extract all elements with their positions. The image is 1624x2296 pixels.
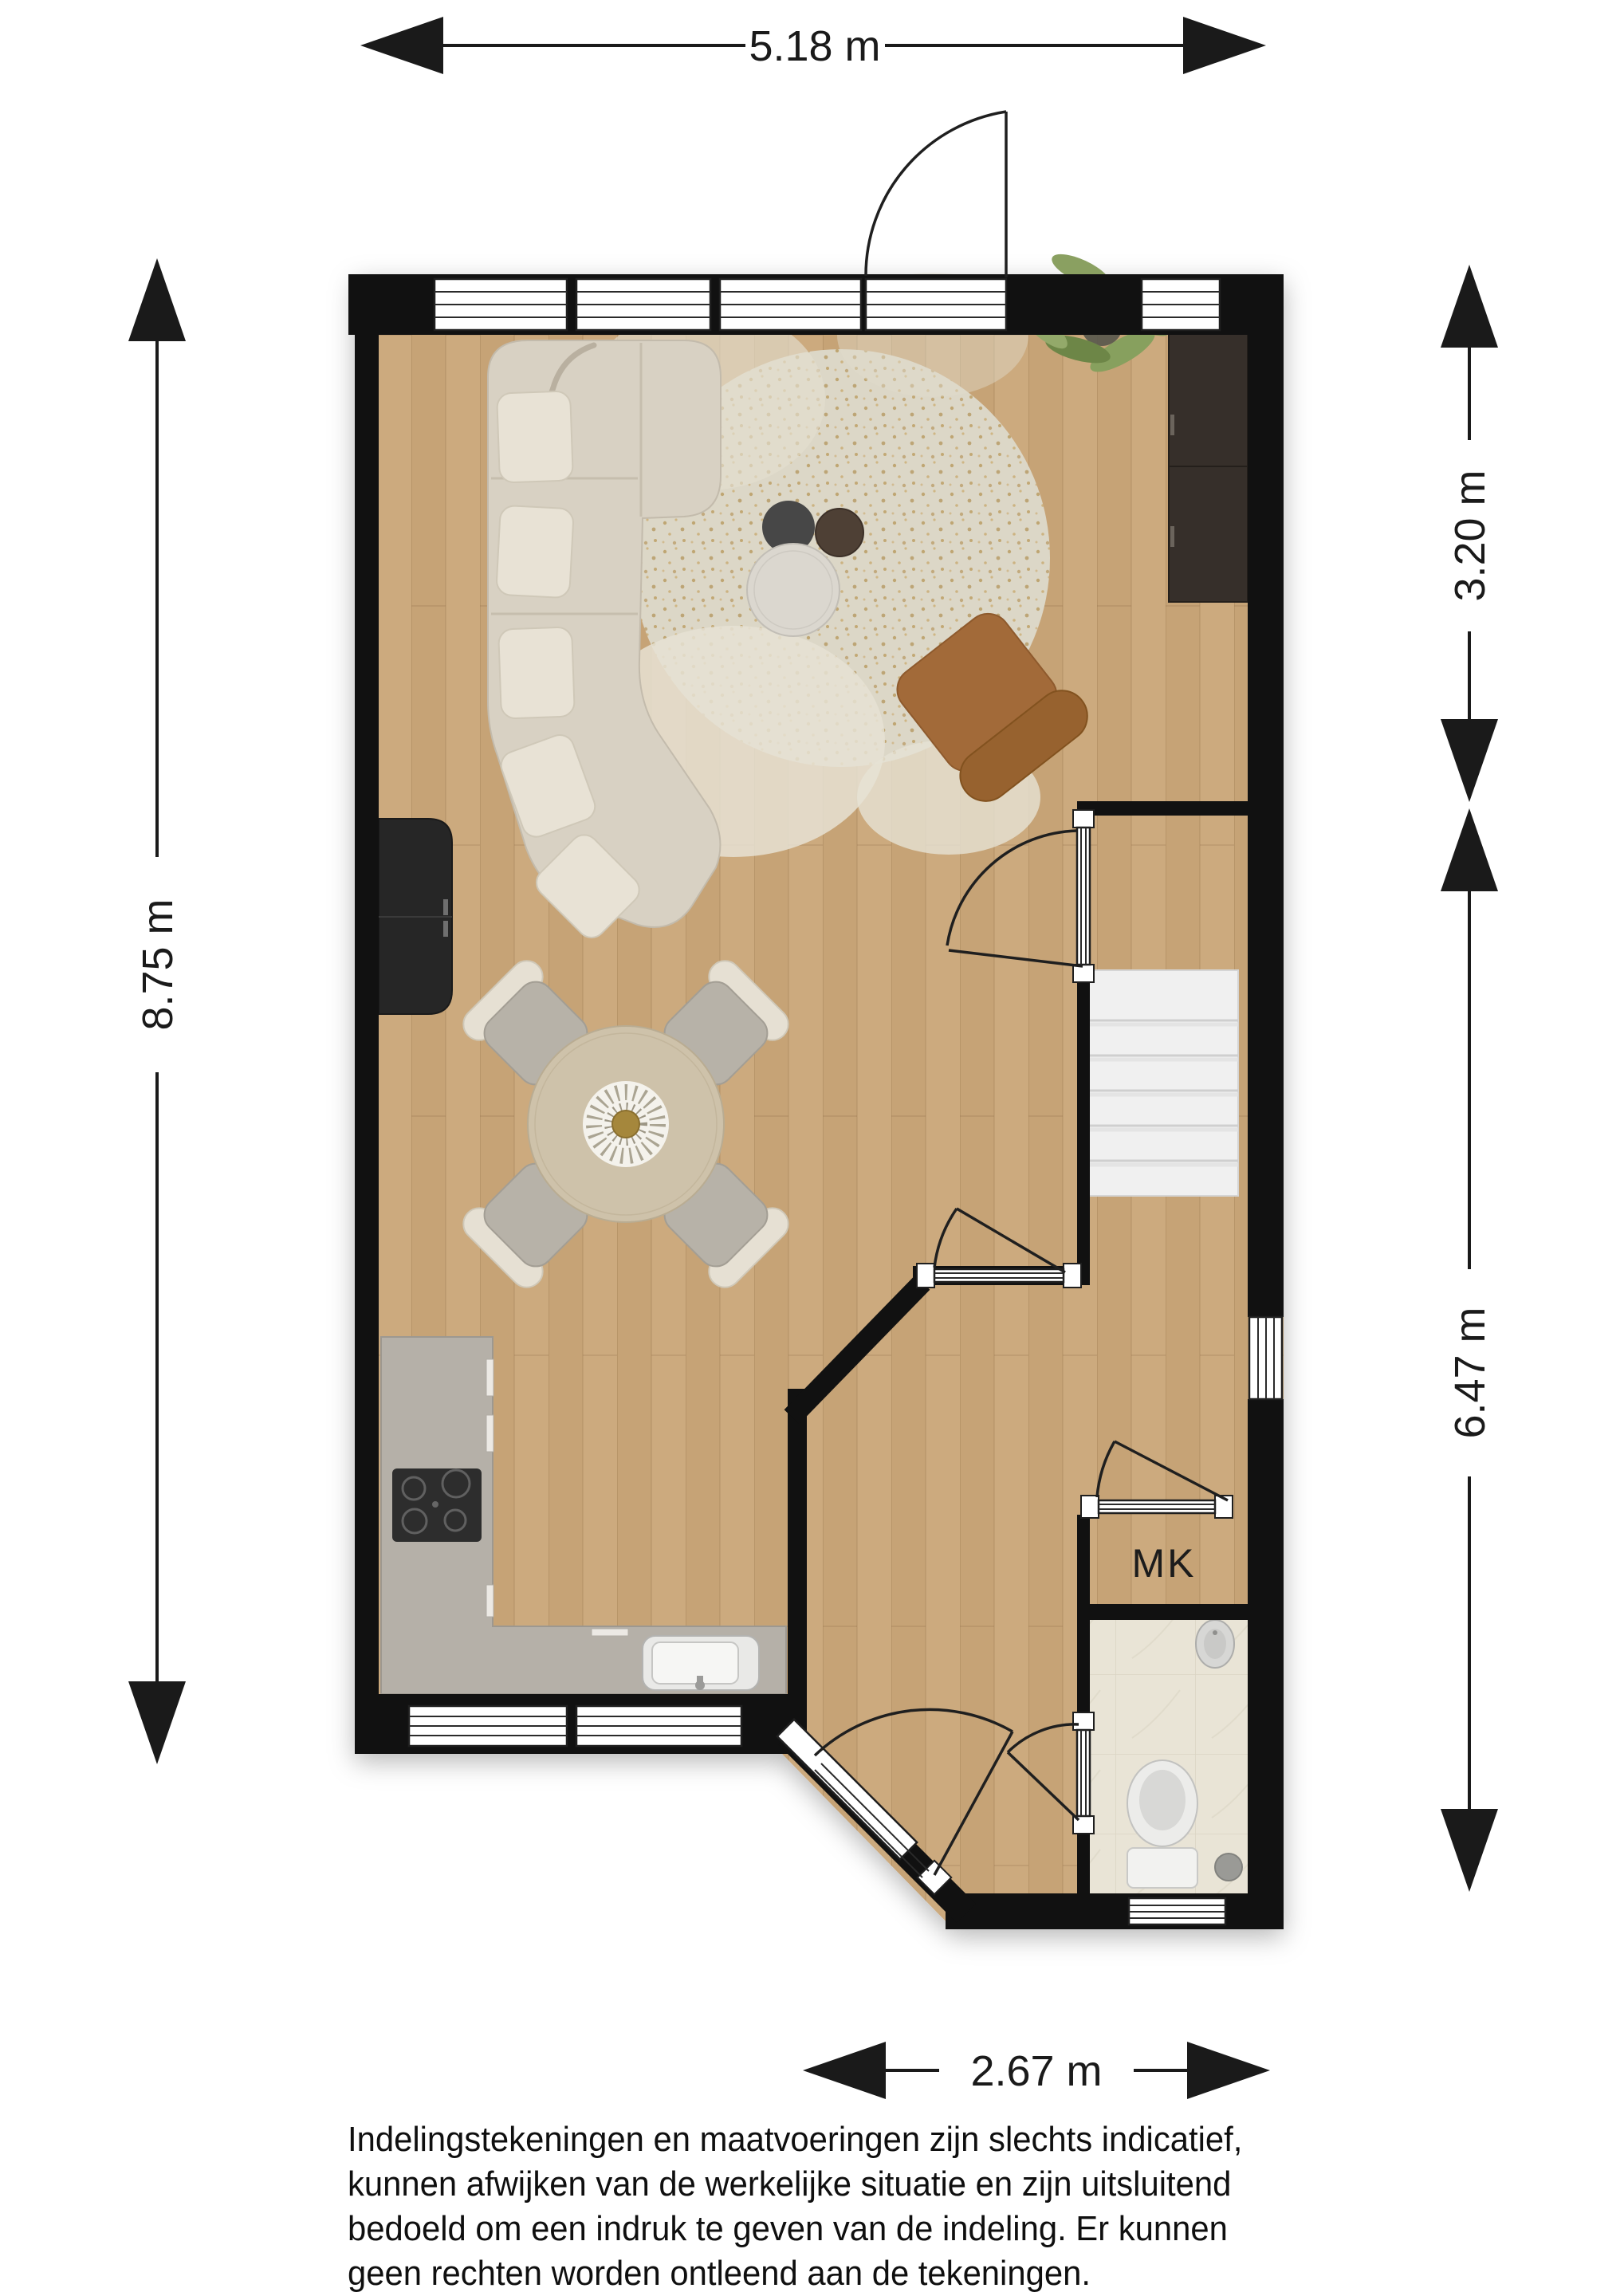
window-kitchen-1 <box>409 1706 567 1746</box>
window-top-1 <box>435 279 567 330</box>
floorplan-canvas: MK 5.18 m 8.75 m 3.20 m 6.47 m 2.67 m <box>0 0 1624 2296</box>
dimension-label-right-lower: 6.47 m <box>1446 1307 1494 1438</box>
wall-left <box>355 274 379 1754</box>
dimension-bottom: 2.67 m <box>809 2047 1264 2095</box>
window-hall-right <box>1249 1317 1282 1399</box>
dimension-right-upper: 3.20 m <box>1446 271 1494 796</box>
wall-mk-bottom <box>1077 1604 1248 1620</box>
wall-hall-left <box>788 1389 807 1752</box>
dimension-label-left: 8.75 m <box>134 898 182 1030</box>
window-top-small <box>1142 279 1220 330</box>
wall-stairwell-side <box>1077 969 1090 1276</box>
disclaimer-text: Indelingstekeningen en maatvoeringen zij… <box>348 2117 1242 2296</box>
wash-basin <box>1196 1620 1234 1668</box>
disclaimer-line: geen rechten worden ontleend aan de teke… <box>348 2251 1242 2296</box>
wall-mk-left <box>1077 1515 1090 1726</box>
cooktop <box>392 1468 482 1542</box>
dimension-label-right-upper: 3.20 m <box>1446 470 1494 601</box>
entry-threshold-top <box>866 279 1006 330</box>
tv-cabinet <box>1169 332 1248 602</box>
floor-drain <box>1215 1854 1242 1881</box>
coffee-table <box>747 544 840 636</box>
window-top-3 <box>720 279 861 330</box>
dimension-left: 8.75 m <box>134 265 182 1758</box>
window-top-2 <box>576 279 710 330</box>
window-bathroom <box>1129 1898 1225 1924</box>
meter-closet-label: MK <box>1132 1541 1197 1586</box>
wall-right-lower <box>1248 1399 1284 1929</box>
dimension-label-top: 5.18 m <box>749 22 880 70</box>
disclaimer-line: kunnen afwijken van de werkelijke situat… <box>348 2162 1242 2207</box>
table-centerpiece <box>583 1081 669 1167</box>
dimension-right-lower: 6.47 m <box>1446 815 1494 1885</box>
wall-right-upper <box>1248 274 1284 1317</box>
wall-bottom-right <box>946 1893 1284 1929</box>
front-door-top <box>866 112 1006 277</box>
wall-stairwell-top <box>1077 801 1248 816</box>
disclaimer-line: bedoeld om een indruk te geven van de in… <box>348 2207 1242 2251</box>
disclaimer-line: Indelingstekeningen en maatvoeringen zij… <box>348 2117 1242 2162</box>
toilet <box>1127 1760 1197 1888</box>
window-kitchen-2 <box>576 1706 741 1746</box>
dimension-label-bottom: 2.67 m <box>970 2047 1102 2095</box>
stairs <box>1088 970 1238 1196</box>
dimension-top: 5.18 m <box>367 22 1260 70</box>
kitchen-sink <box>643 1636 759 1690</box>
side-table-wood <box>816 509 863 556</box>
sideboard <box>379 819 452 1014</box>
